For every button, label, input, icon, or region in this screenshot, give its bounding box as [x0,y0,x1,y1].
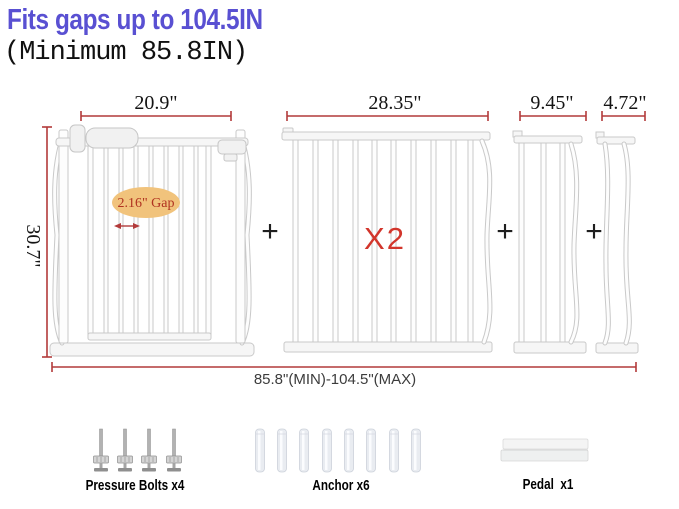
page-title: Fits gaps up to 104.5IN [7,4,263,37]
gate-handle [70,125,138,152]
plus-sign-3: + [574,212,614,252]
dim-label-main-width: 20.9" [106,92,206,115]
dim-label-ext4-width: 4.72" [575,92,675,115]
gap-callout: 2.16" Gap [112,187,180,218]
pressure-bolts-label: Pressure Bolts x4 [57,477,213,494]
plus-sign-2: + [485,212,525,252]
product-dimension-diagram: Fits gaps up to 104.5IN (Minimum 85.8IN)… [0,0,679,509]
gate-panel-main [50,125,254,356]
page-subtitle: (Minimum 85.8IN) [4,38,247,68]
anchors-label: Anchor x6 [263,477,419,494]
gap-label: 2.16" Gap [117,196,174,211]
quantity-multiplier: X2 [335,221,435,257]
pedal-graphic [501,439,588,461]
anchors-graphic [256,429,421,472]
dim-label-ext28-width: 28.35" [345,92,445,115]
dim-label-height: 30.7" [21,196,45,296]
total-range-label: 85.8"(MIN)-104.5"(MAX) [235,371,435,388]
pedal-label: Pedal x1 [470,476,626,493]
pressure-bolts-graphic [94,429,182,472]
plus-sign-1: + [250,212,290,252]
